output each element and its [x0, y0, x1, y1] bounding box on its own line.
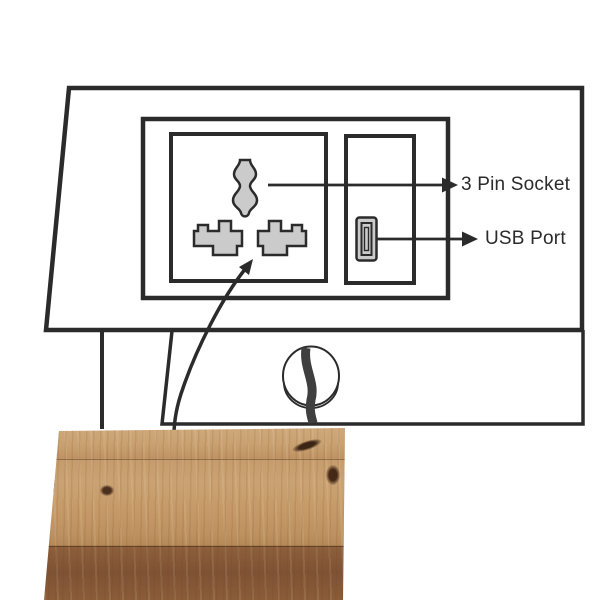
table-apron-outline — [162, 330, 583, 424]
product-diagram: 3 Pin Socket USB Port — [0, 0, 600, 600]
wood-knot — [326, 465, 340, 485]
wood-knot — [100, 485, 114, 496]
usb-port-label: USB Port — [485, 229, 566, 249]
pin-socket-label: 3 Pin Socket — [461, 175, 570, 195]
wood-surface — [44, 427, 345, 600]
usb-module-outline — [346, 136, 414, 283]
wood-plank-seam — [44, 546, 345, 547]
product-photo — [44, 427, 345, 600]
wood-plank-seam — [44, 459, 345, 460]
cable-icon — [306, 348, 313, 423]
